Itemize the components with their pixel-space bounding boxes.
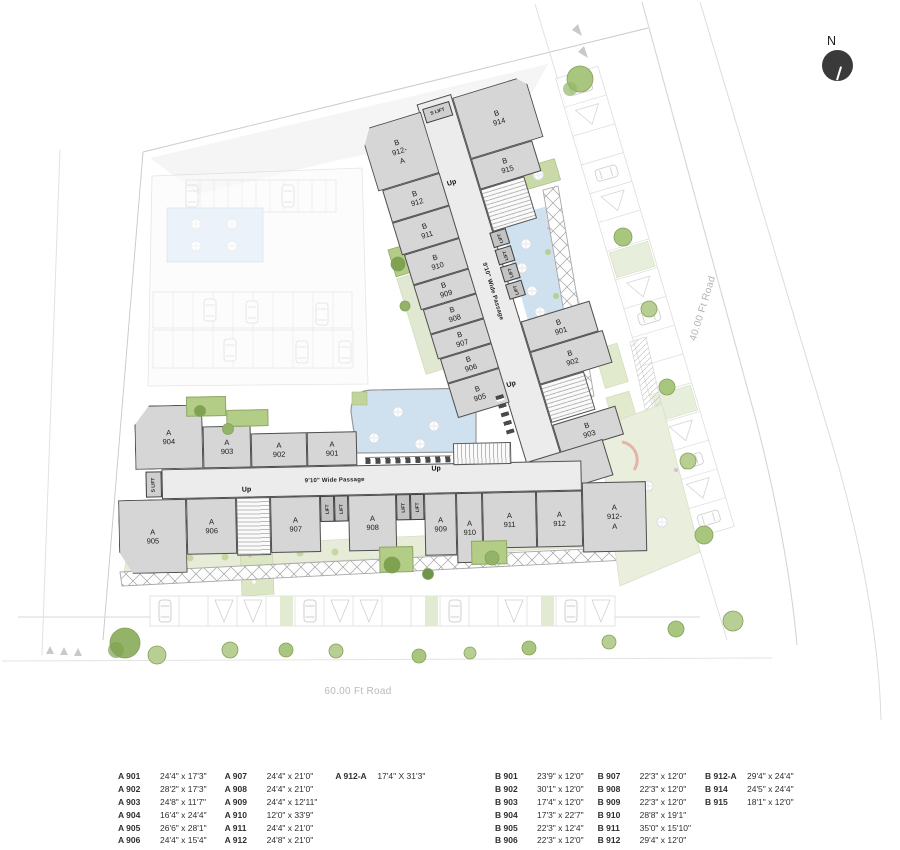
passage-label-a: 9'10" Wide Passage (269, 467, 399, 494)
parking-lot-faded (148, 168, 368, 386)
north-label: N (827, 34, 836, 48)
legend-row: A 91012'0" x 33'9" (225, 808, 318, 821)
legend-row: A 90624'4" x 15'4" (118, 834, 207, 847)
north-arrow: N (818, 36, 862, 92)
legend-row: B 91518'1" x 12'0" (705, 796, 794, 809)
stairs-a-center (453, 442, 511, 465)
roadside-parking-bottom (150, 596, 615, 626)
up-label-a-left: Up (242, 486, 251, 493)
up-label-a-center: Up (431, 465, 440, 472)
north-needle (836, 66, 842, 80)
legend-b-col-1: B 90123'9" x 12'0" B 90230'1" x 12'0" B … (495, 770, 584, 847)
legend-row: A 90724'4" x 21'0" (225, 770, 318, 783)
planter-a-1 (186, 396, 226, 417)
legend-row: B 90722'3" x 12'0" (598, 770, 691, 783)
lift-a-1: LIFT (320, 496, 335, 522)
stairs-a-left (236, 497, 271, 556)
legend-row: A 90324'8" x 11'7" (118, 796, 207, 809)
room-a-906: A 906 (186, 498, 237, 555)
legend-row: A 91224'8" x 21'0" (225, 834, 318, 847)
legend-row: A 912-A17'4" X 31'3" (335, 770, 425, 783)
room-a-908: A 908 (348, 494, 397, 551)
legend-row: A 91124'4" x 21'0" (225, 821, 318, 834)
room-a-903: A 903 (203, 425, 252, 468)
legend-b-col-2: B 90722'3" x 12'0" B 90822'3" x 12'0" B … (598, 770, 691, 847)
room-a-901: A 901 (307, 431, 358, 466)
legend-row: B 90317'4" x 12'0" (495, 796, 584, 809)
room-a-912: A 912 (536, 491, 583, 548)
legend-row: B 91135'0" x 15'10" (598, 821, 691, 834)
pool (167, 208, 263, 262)
legend-row: A 90526'6" x 28'1" (118, 821, 207, 834)
legend-row: B 90622'3" x 12'0" (495, 834, 584, 847)
legend-row: B 90417'3" x 22'7" (495, 808, 584, 821)
site-plan: { "north": { "label": "N" }, "roads": { … (0, 0, 900, 850)
legend-row: B 91028'8" x 19'1" (598, 808, 691, 821)
room-a-912a: A 912-A (582, 481, 647, 552)
legend-row: A 90924'4" x 12'11" (225, 796, 318, 809)
lift-a-2: LIFT (334, 495, 349, 521)
legend-b-col-3: B 912-A29'4" x 24'4" B 91424'5" x 24'4" … (705, 770, 794, 847)
legend-row: A 90416'4" x 24'4" (118, 808, 207, 821)
legend-a-units: A 90124'4" x 17'3" A 90228'2" x 17'3" A … (118, 770, 443, 847)
room-a-907: A 907 (270, 496, 321, 553)
legend-row: B 90230'1" x 12'0" (495, 783, 584, 796)
planter-a-4 (471, 540, 507, 565)
legend-a-col-3: A 912-A17'4" X 31'3" (335, 770, 425, 847)
legend-row: B 91229'4" x 12'0" (598, 834, 691, 847)
service-lift-a: S LIFT (145, 471, 162, 497)
room-a-905: A 905 (118, 499, 188, 574)
planter-a-2 (226, 409, 268, 427)
legend-row: A 90824'4" x 21'0" (225, 783, 318, 796)
legend-row: B 90922'3" x 12'0" (598, 796, 691, 809)
legend-row: B 90522'3" x 12'4" (495, 821, 584, 834)
room-a-902: A 902 (251, 432, 308, 467)
legend-row: A 90228'2" x 17'3" (118, 783, 207, 796)
legend-b-units: B 90123'9" x 12'0" B 90230'1" x 12'0" B … (495, 770, 808, 847)
legend-a-col-1: A 90124'4" x 17'3" A 90228'2" x 17'3" A … (118, 770, 207, 847)
legend-row: A 90124'4" x 17'3" (118, 770, 207, 783)
lift-a-4: LIFT (410, 494, 425, 520)
legend-a-col-2: A 90724'4" x 21'0" A 90824'4" x 21'0" A … (225, 770, 318, 847)
planter-a-3 (379, 546, 414, 573)
legend-row: B 90822'3" x 12'0" (598, 783, 691, 796)
road-label-bottom: 60.00 Ft Road (303, 686, 413, 697)
legend-row: B 912-A29'4" x 24'4" (705, 770, 794, 783)
room-a-909: A 909 (424, 493, 457, 556)
north-circle (822, 50, 853, 81)
lift-a-3: LIFT (396, 494, 411, 520)
legend-row: B 91424'5" x 24'4" (705, 783, 794, 796)
legend-row: B 90123'9" x 12'0" (495, 770, 584, 783)
